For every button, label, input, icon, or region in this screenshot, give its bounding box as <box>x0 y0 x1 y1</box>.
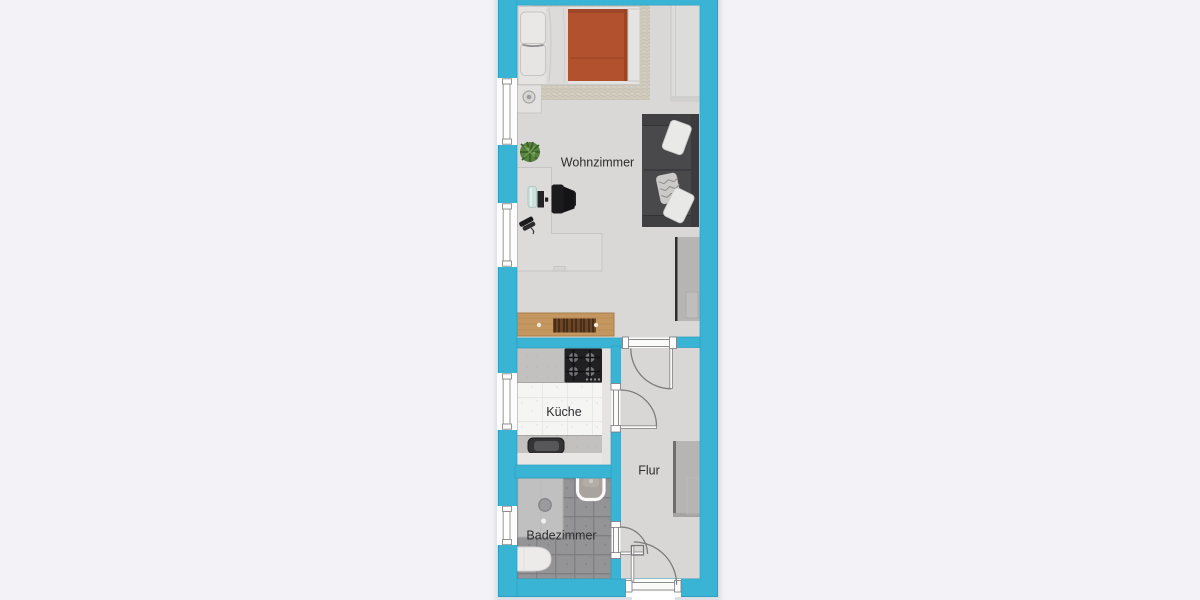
svg-text:Küche: Küche <box>546 405 581 419</box>
svg-text:Flur: Flur <box>638 464 660 478</box>
svg-text:Wohnzimmer: Wohnzimmer <box>561 156 634 170</box>
svg-text:Badezimmer: Badezimmer <box>526 529 596 543</box>
